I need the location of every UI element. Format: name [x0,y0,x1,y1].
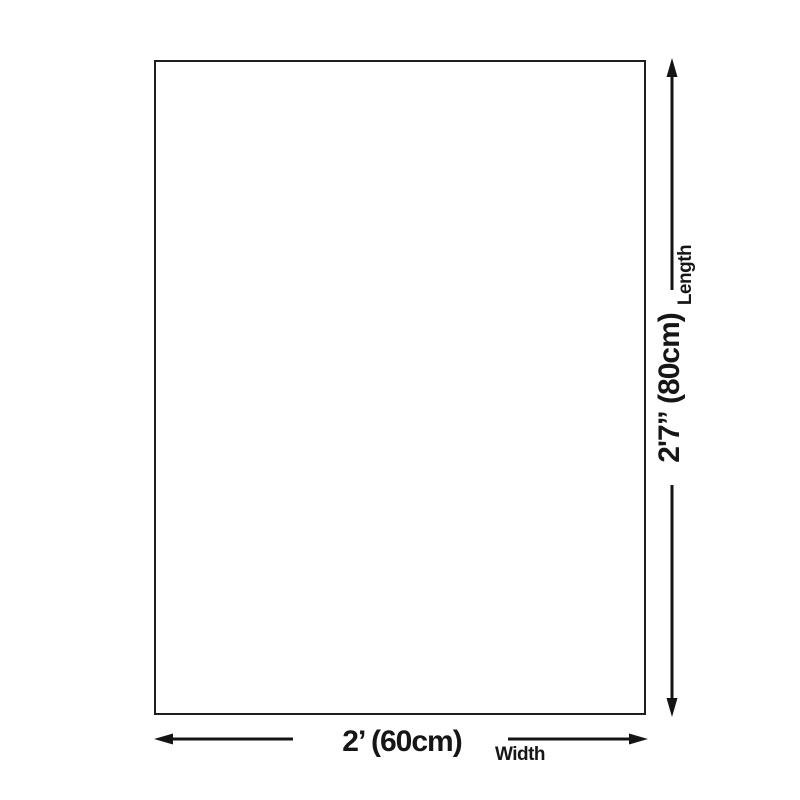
arrow-left-icon [154,734,173,745]
arrow-up-icon [667,58,678,77]
length-value: 2'7” (80cm) [654,298,688,478]
length-label: Length [676,243,696,307]
dimension-diagram: 2'7” (80cm) Length 2’ (60cm) Width [0,0,800,800]
arrow-down-icon [667,698,678,717]
width-label: Width [490,745,550,765]
arrow-right-icon [629,734,648,745]
width-value: 2’ (60cm) [340,726,464,758]
